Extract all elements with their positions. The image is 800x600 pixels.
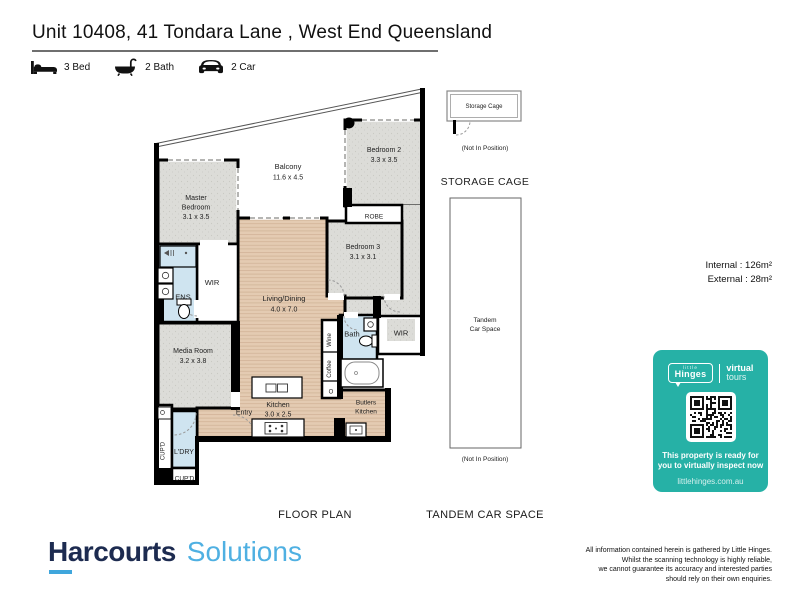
flyer-page: Unit 10408, 41 Tondara Lane , West End Q…	[0, 0, 800, 600]
bedroom2-dims: 3.3 x 3.5	[371, 157, 398, 164]
hinges-logo-bubble: little Hinges	[668, 363, 714, 383]
floor-plan-caption: FLOOR PLAN	[255, 509, 375, 521]
wir-bath-label: WIR	[394, 329, 409, 338]
bath-label: Bath	[344, 330, 359, 339]
wine-label: Wine	[327, 333, 333, 347]
master-label-1: Master	[185, 195, 207, 202]
tandem-car-space: Tandem Car Space (Not In Position)	[450, 198, 521, 463]
floor-plan-drawing: Balcony 11.6 x 4.5 Master Bedroom 3.1 x …	[0, 0, 800, 600]
master-label-2: Bedroom	[182, 205, 211, 212]
laundry-label: L'DRY	[174, 449, 194, 456]
little-hinges-logo: little Hinges virtual tours	[668, 363, 754, 383]
butlers-label-1: Butlers	[356, 400, 377, 407]
tandem-label-1: Tandem	[473, 317, 496, 324]
living-label: Living/Dining	[263, 294, 306, 303]
master-dims: 3.1 x 3.5	[183, 214, 210, 221]
entry-label: Entry	[236, 410, 253, 417]
speech-tail	[675, 382, 681, 387]
virtual-tour-badge: little Hinges virtual tours This propert…	[653, 350, 768, 492]
agency-logo: HarcourtsSolutions	[48, 536, 302, 568]
storage-cage: Storage Cage (Not In Position)	[447, 91, 521, 152]
kitchen-dims: 3.0 x 2.5	[265, 412, 292, 419]
storage-cage-unit-label: Storage Cage	[465, 104, 503, 110]
logo-small-text: little	[675, 366, 707, 370]
tandem-label-2: Car Space	[470, 326, 501, 333]
bedroom3-dims: 3.1 x 3.1	[350, 254, 377, 261]
column-dot	[344, 118, 355, 129]
living-dims: 4.0 x 7.0	[271, 307, 298, 314]
area-figures: Internal : 126m² External : 28m²	[705, 259, 772, 286]
media-label: Media Room	[173, 348, 213, 355]
tandem-note: (Not In Position)	[462, 456, 509, 463]
tandem-caption: TANDEM CAR SPACE	[414, 509, 556, 521]
wir-master-label: WIR	[205, 278, 220, 287]
logo-divider	[719, 364, 720, 383]
media-dims: 3.2 x 3.8	[180, 358, 207, 365]
bedroom3-label: Bedroom 3	[346, 244, 380, 251]
logo-brand-text: Hinges	[675, 370, 707, 379]
agency-name-secondary: Solutions	[187, 536, 302, 567]
storage-cage-title: STORAGE CAGE	[441, 176, 530, 188]
external-area: External : 28m²	[705, 273, 772, 287]
storage-cage-note: (Not In Position)	[462, 145, 509, 152]
butlers-label-2: Kitchen	[355, 409, 377, 416]
cupboard-bottom-label: CUP'D	[175, 476, 195, 483]
balcony-label: Balcony	[275, 162, 302, 171]
oven-label: O	[329, 390, 334, 396]
coffee-label: Coffee	[327, 360, 333, 378]
bedroom2-label: Bedroom 2	[367, 147, 401, 154]
room-media	[158, 323, 233, 409]
robe-label: ROBE	[365, 214, 384, 221]
internal-area: Internal : 126m²	[705, 259, 772, 273]
disclaimer: All information contained herein is gath…	[586, 546, 772, 584]
badge-url: littlehinges.com.au	[677, 477, 743, 486]
kitchen-label: Kitchen	[266, 402, 289, 409]
qr-code	[690, 396, 732, 438]
room-master-bedroom	[158, 160, 238, 244]
logo-underline	[49, 570, 72, 574]
ens-label: ENS	[175, 293, 190, 302]
balcony-dims: 11.6 x 4.5	[273, 175, 303, 182]
tours-text: tours	[726, 373, 753, 382]
agency-name-primary: Harcourts	[48, 536, 176, 567]
qr-code-frame	[686, 392, 736, 442]
badge-message: This property is ready for you to virtua…	[658, 451, 763, 471]
room-laundry	[172, 411, 197, 468]
cupboard-side-label: CUP'D	[161, 441, 167, 460]
